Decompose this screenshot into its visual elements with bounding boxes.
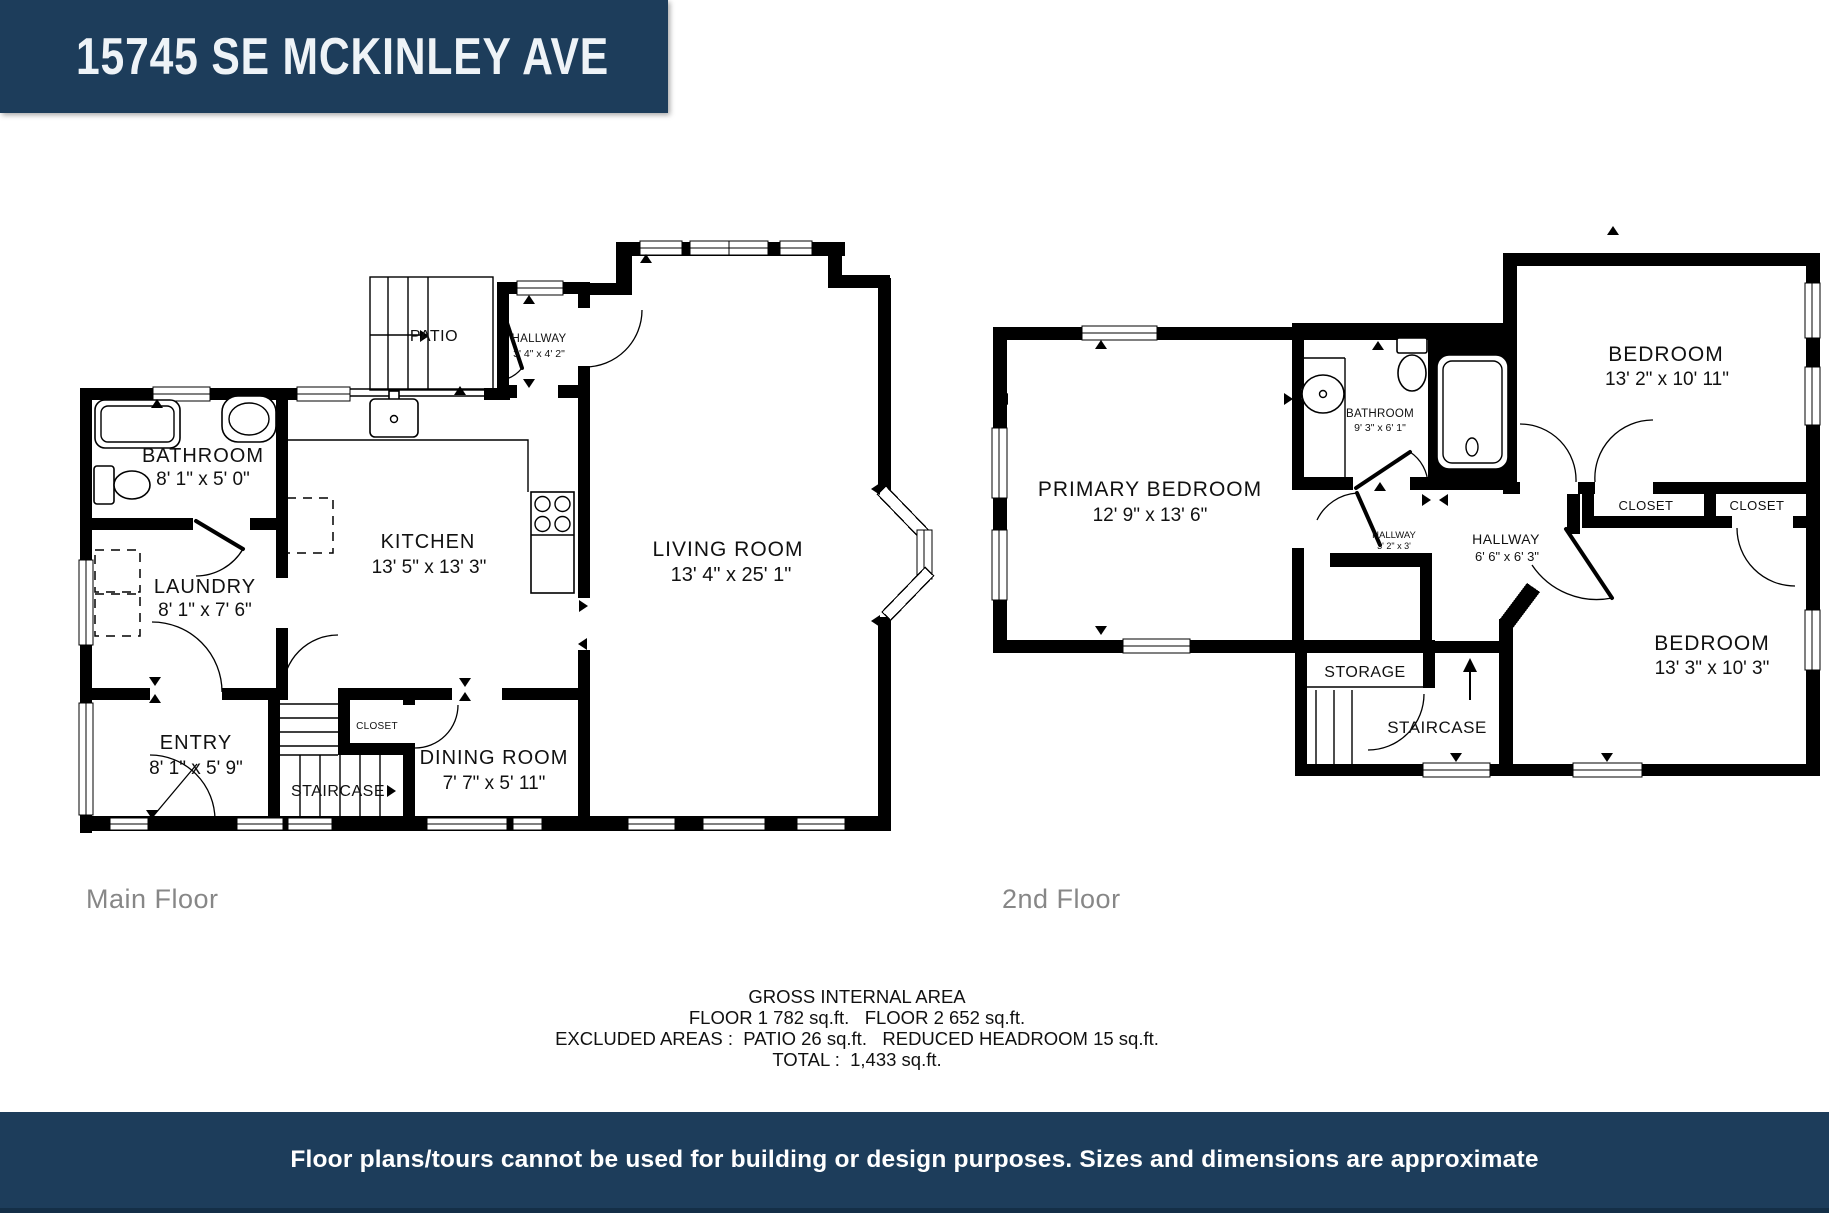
room-label-bathroom: BATHROOM [1346,408,1414,420]
second-floor-caption: 2nd Floor [1002,884,1121,915]
room-dims-laundry: 8' 1" x 7' 6" [158,600,252,621]
toilet-icon [94,466,150,504]
area-summary-excluded: EXCLUDED AREAS : PATIO 26 sq.ft. REDUCED… [357,1028,1357,1049]
room-dims-bedroom-top: 13' 2" x 10' 11" [1605,369,1729,390]
area-summary-floors: FLOOR 1 782 sq.ft. FLOOR 2 652 sq.ft. [357,1007,1357,1028]
room-label-storage: STORAGE [1324,664,1405,681]
room-dims-dining-room: 7' 7" x 5' 11" [443,773,546,794]
room-dims-hallway-small: 3' 2" x 3' [1377,541,1411,551]
disclaimer-bar: Floor plans/tours cannot be used for bui… [0,1112,1829,1213]
room-dims-entry: 8' 1" x 5' 9" [149,758,243,779]
stove-icon [531,492,574,593]
main-floor-caption: Main Floor [86,884,219,915]
bathtub-icon [95,400,180,448]
room-dims-living-room: 13' 4" x 25' 1" [671,564,792,586]
area-summary-total: TOTAL : 1,433 sq.ft. [357,1049,1357,1070]
room-label-kitchen: KITCHEN [381,531,476,553]
room-label-bedroom-bottom: BEDROOM [1654,632,1770,655]
room-dims-bedroom-bottom: 13' 3" x 10' 3" [1655,658,1770,679]
room-label-closet-left: CLOSET [1618,498,1673,513]
room-dims-bathroom: 9' 3" x 6' 1" [1354,422,1406,434]
room-label-bathroom: BATHROOM [142,445,264,467]
bathtub-icon [1437,355,1508,469]
kitchen-counter [288,440,528,492]
room-label-patio: PATIO [410,328,458,345]
room-label-staircase: STAIRCASE [291,783,385,800]
room-label-entry: ENTRY [160,732,232,754]
bathroom-sink-icon [1301,375,1344,413]
main-floor-plan: BATHROOM 8' 1" x 5' 0" LAUNDRY 8' 1" x 7… [79,241,934,833]
room-label-staircase: STAIRCASE [1387,718,1487,737]
second-floor-plan: PRIMARY BEDROOM 12' 9" x 13' 6" BATHROOM… [992,226,1820,777]
room-label-bedroom-top: BEDROOM [1608,343,1724,366]
room-label-hallway-small: HALLWAY [1372,530,1416,541]
floor-plan-page: 15745 SE MCKINLEY AVE [0,0,1829,1213]
room-dims-kitchen: 13' 5" x 13' 3" [372,557,487,578]
area-summary-title: GROSS INTERNAL AREA [357,986,1357,1007]
room-label-closet: CLOSET [356,721,398,732]
room-dims-hallway: 3' 4" x 4' 2" [513,348,565,360]
room-dims-bathroom: 8' 1" x 5' 0" [156,469,250,490]
room-label-hallway: HALLWAY [512,333,567,345]
room-label-hallway: HALLWAY [1472,531,1540,547]
room-label-living-room: LIVING ROOM [652,538,803,561]
bay-window [877,486,933,620]
room-label-primary-bedroom: PRIMARY BEDROOM [1038,478,1262,501]
disclaimer-text: Floor plans/tours cannot be used for bui… [290,1146,1538,1174]
room-label-laundry: LAUNDRY [154,576,256,598]
area-summary: GROSS INTERNAL AREA FLOOR 1 782 sq.ft. F… [357,986,1357,1070]
bathroom-sink-icon [222,396,276,442]
room-dims-primary-bedroom: 12' 9" x 13' 6" [1093,505,1208,526]
room-label-dining-room: DINING ROOM [420,747,569,769]
kitchen-sink-icon [370,391,418,437]
second-floor-room-labels: PRIMARY BEDROOM 12' 9" x 13' 6" BATHROOM… [1038,343,1785,737]
room-dims-hallway: 6' 6" x 6' 3" [1475,549,1539,564]
toilet-icon [1397,338,1427,391]
room-label-closet-right: CLOSET [1729,498,1784,513]
doors [1317,420,1795,750]
